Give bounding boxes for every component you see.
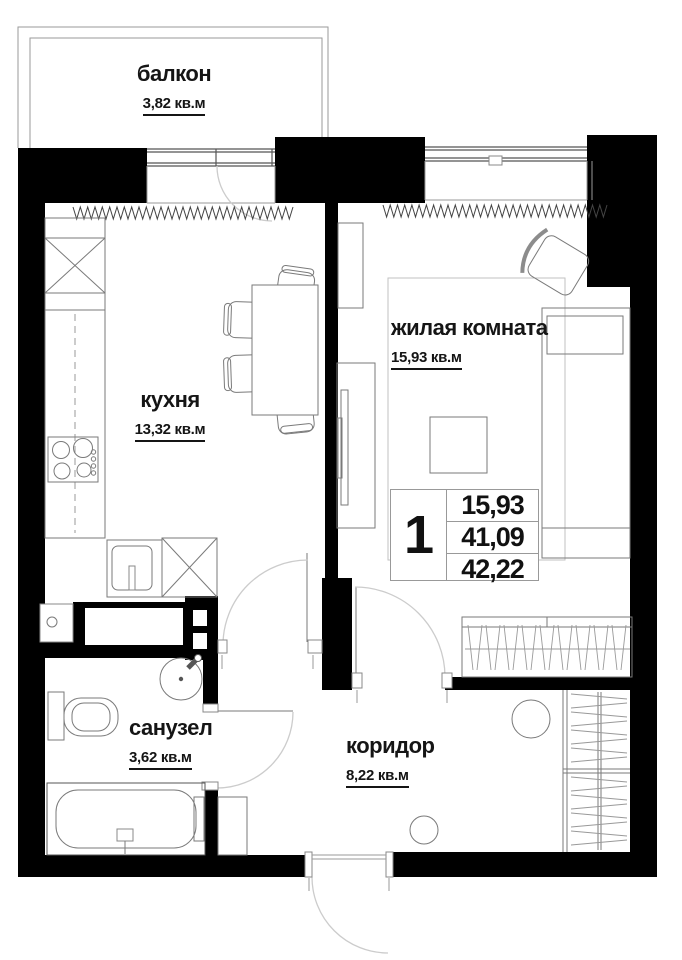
room-name: балкон xyxy=(104,63,244,85)
room-area: 3,82 кв.м xyxy=(104,96,244,111)
room-area: 8,22 кв.м xyxy=(346,768,496,783)
total-area-value: 42,22 xyxy=(447,553,538,585)
rooms-count: 1 xyxy=(391,490,447,580)
room-label-bathroom: санузел 3,62 кв.м xyxy=(129,717,279,765)
area-value: 41,09 xyxy=(447,521,538,553)
room-area: 13,32 кв.м xyxy=(100,422,240,437)
room-name: кухня xyxy=(100,389,240,411)
room-label-balcony: балкон 3,82 кв.м xyxy=(104,63,244,111)
room-label-kitchen: кухня 13,32 кв.м xyxy=(100,389,240,437)
room-name: жилая комната xyxy=(391,317,591,339)
floorplan-page: балкон 3,82 кв.м кухня 13,32 кв.м жилая … xyxy=(0,0,682,960)
living-room-window xyxy=(425,147,592,200)
room-area: 3,62 кв.м xyxy=(129,750,279,765)
living-area-value: 15,93 xyxy=(447,490,538,521)
apartment-info-table: 1 15,93 41,09 42,22 xyxy=(390,489,539,581)
areas-column: 15,93 41,09 42,22 xyxy=(447,490,538,580)
room-label-corridor: коридор 8,22 кв.м xyxy=(346,735,496,783)
room-name: коридор xyxy=(346,735,496,757)
room-living-room xyxy=(338,203,630,677)
vent-shaft xyxy=(40,604,73,642)
room-label-living-room: жилая комната 15,93 кв.м xyxy=(391,317,591,365)
kitchen-window xyxy=(147,149,275,203)
room-name: санузел xyxy=(129,717,279,739)
room-area: 15,93 кв.м xyxy=(391,350,591,365)
entrance-door xyxy=(305,852,393,953)
